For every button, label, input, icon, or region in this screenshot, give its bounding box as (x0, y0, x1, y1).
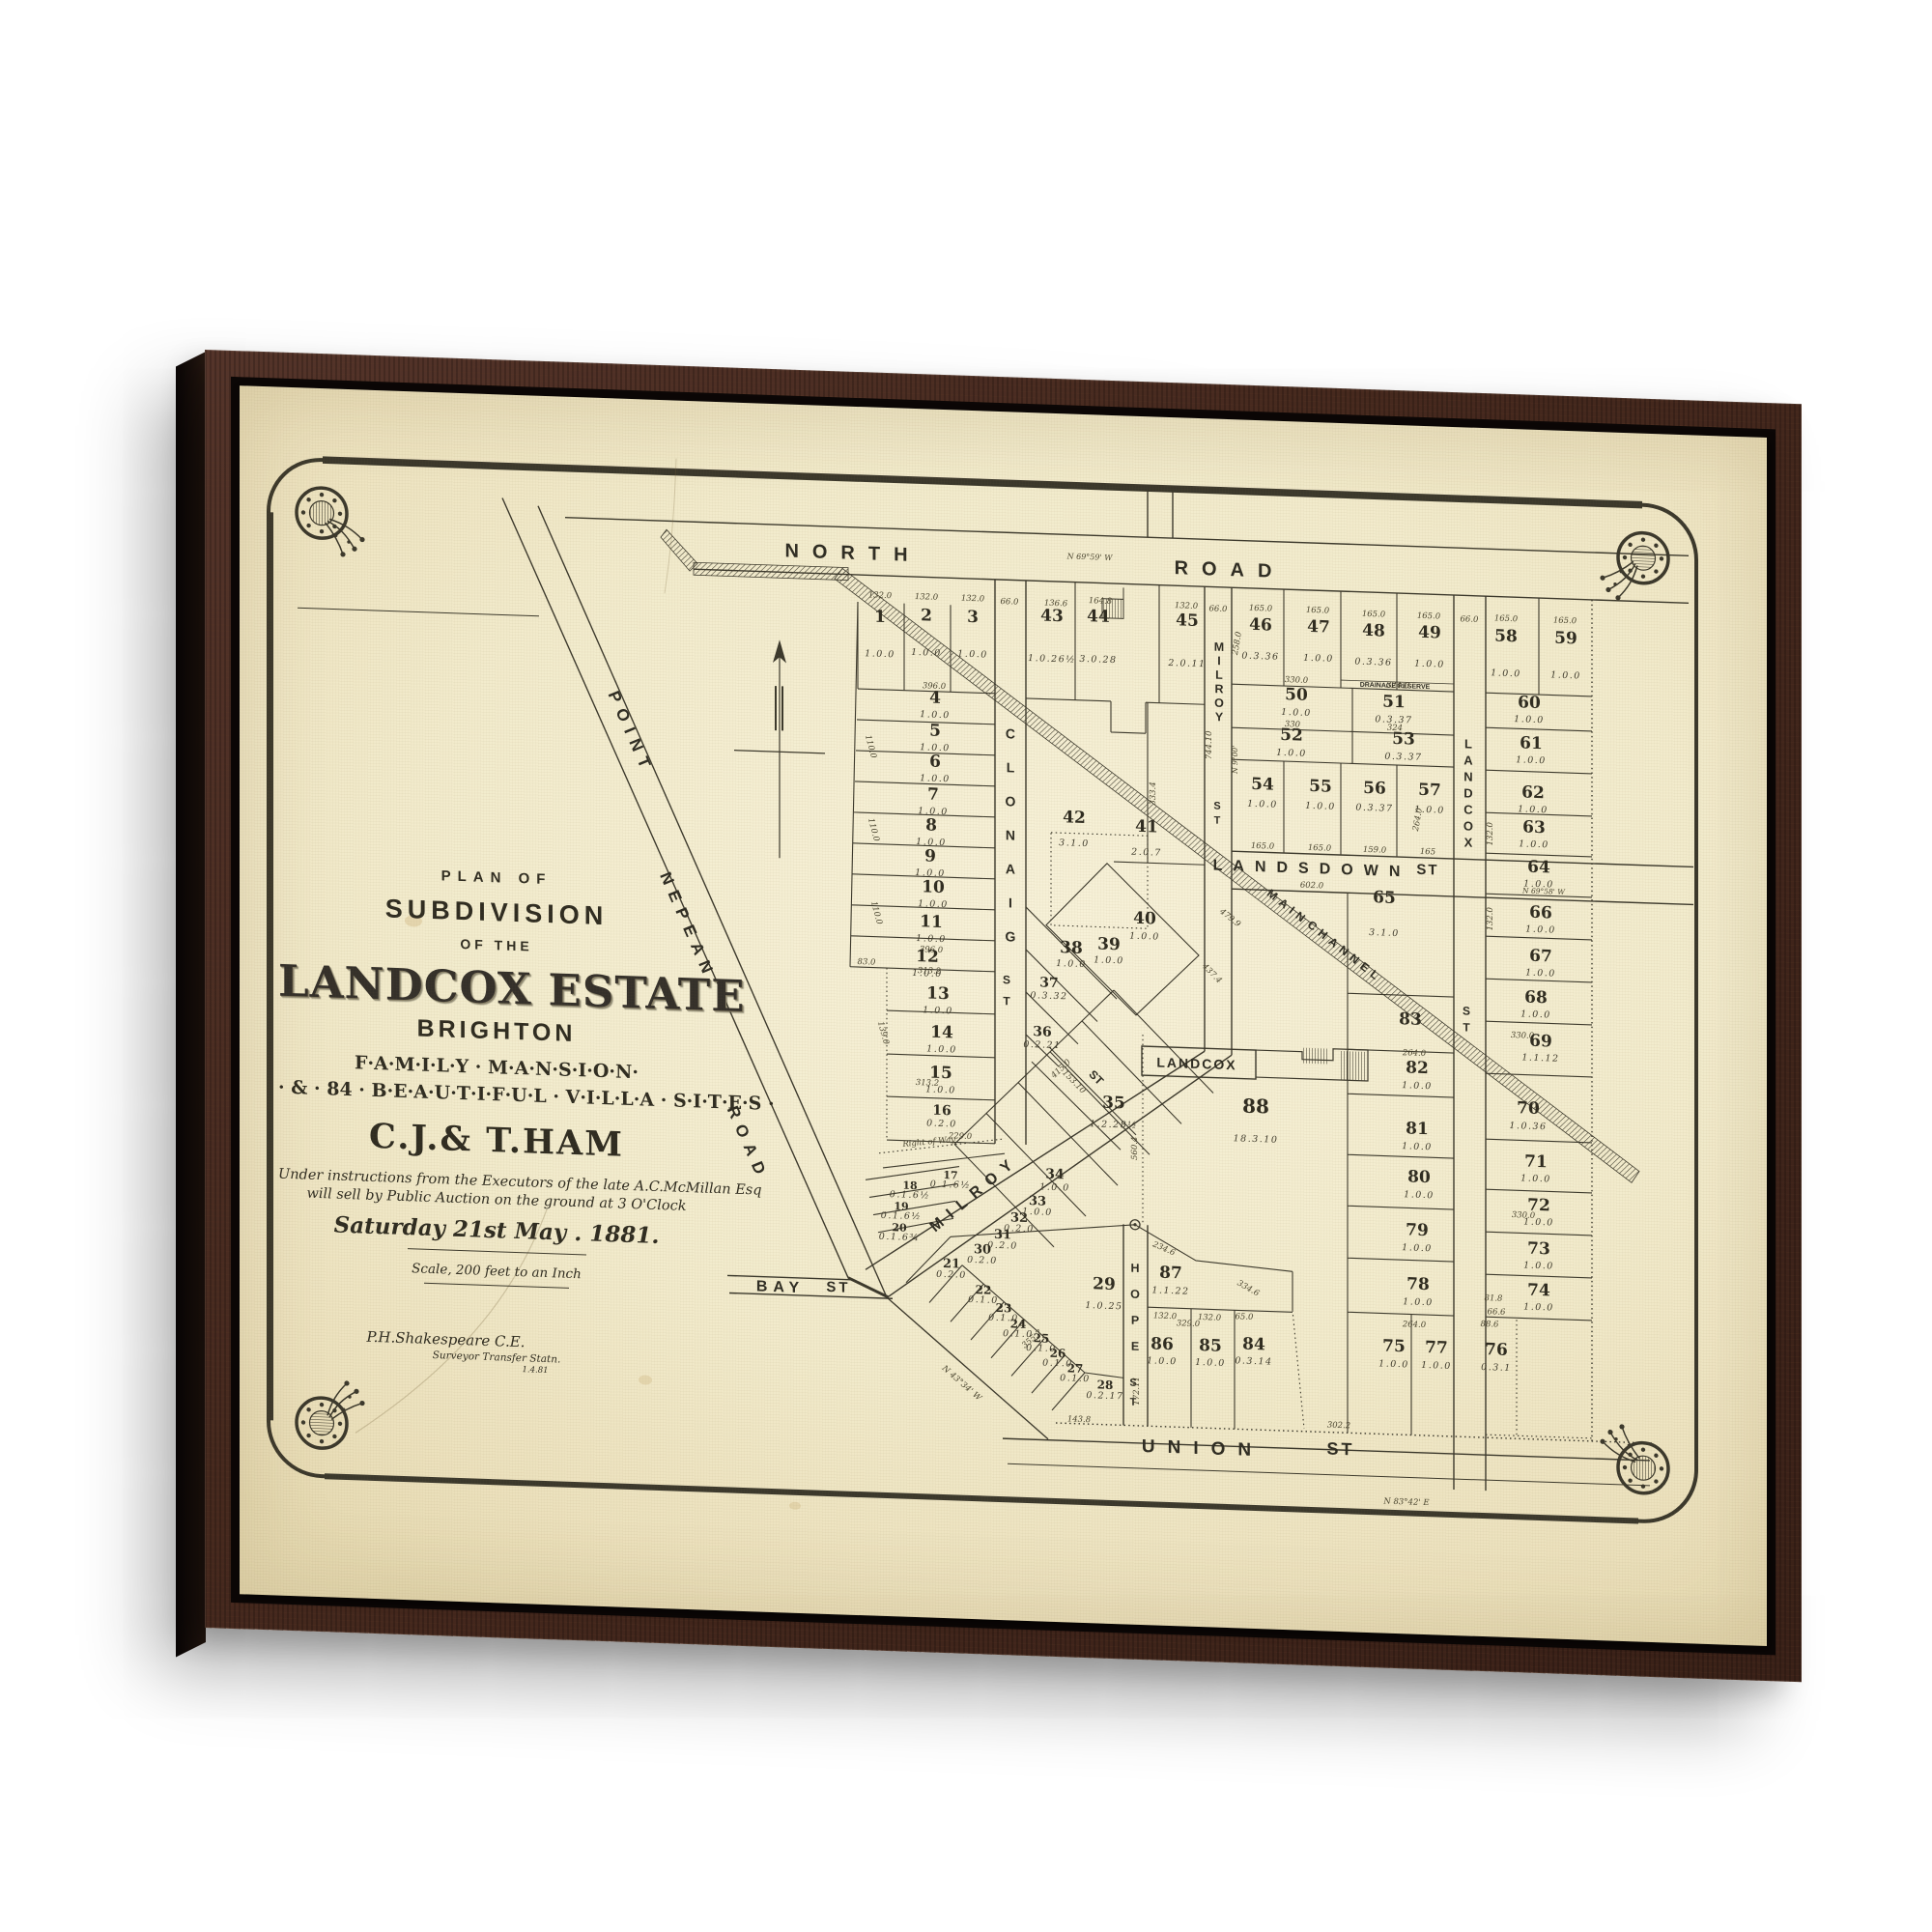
lot-area: 1.0.0 (1523, 878, 1554, 890)
street-label-milroy-street: S (1213, 801, 1220, 812)
lot-area: 1.0.0 (1518, 804, 1548, 815)
street-label-milroy-street: Y (1215, 710, 1224, 724)
dimension-label: 334.6 (1236, 1279, 1262, 1299)
lot-number: 35 (1102, 1094, 1125, 1114)
street-label-point-nepean-road: ROAD (724, 1103, 773, 1183)
lot-number: 60 (1518, 693, 1541, 713)
lot-number: 64 (1527, 858, 1550, 878)
street-label-clonaig-street: I (1009, 895, 1012, 910)
lot-area: 1.1.12 (1521, 1052, 1559, 1064)
corner-ornament-top-left (297, 487, 365, 557)
lot-number: 76 (1485, 1340, 1508, 1360)
lot-number: 52 (1280, 725, 1303, 746)
lot-number: 6 (929, 753, 941, 772)
lot-number: 83 (1399, 1009, 1422, 1030)
street-label-clonaig-street: N (1006, 827, 1015, 842)
dimension-label: 560.4 (1130, 1136, 1140, 1160)
dimension-label: 165.0 (1362, 610, 1386, 620)
frame-side-face (176, 352, 206, 1658)
lot-number: 2 (921, 606, 932, 625)
lot-area: 3.0.28 (1079, 654, 1117, 666)
title-subdivision: SUBDIVISION (278, 891, 715, 935)
lot-area: 1.0.0 (1281, 707, 1312, 719)
lot-number: 55 (1309, 777, 1332, 797)
lot-area: 0.1.0 (1003, 1328, 1034, 1340)
lot-number: 70 (1517, 1098, 1540, 1119)
lot-number: 58 (1494, 626, 1518, 646)
dimension-label: 333.4 (1149, 781, 1158, 806)
lot-number: 5 (929, 722, 941, 741)
dimension-label: 264.0 (1402, 1320, 1427, 1330)
dimension-label: 66.0 (1461, 614, 1480, 625)
landcox-building-label: LANDCOX (1156, 1055, 1236, 1073)
lot-area: 1.0.0 (1276, 748, 1307, 759)
dimension-label: 132.0 (868, 590, 893, 601)
street-label-point-nepean-road: POINT (605, 689, 658, 778)
lot-number: 84 (1242, 1335, 1265, 1355)
lot-number: 49 (1418, 623, 1441, 643)
lot-number: 12 (916, 947, 939, 967)
lot-number: 38 (1060, 938, 1083, 958)
lot-area: 1.0.0 (1303, 653, 1334, 665)
lot-area: 1.0.0 (1056, 958, 1087, 970)
lot-area: 1.0.0 (1421, 1360, 1452, 1372)
lot-area: 18.3.10 (1234, 1133, 1279, 1146)
street-label-clonaig-street: T (1003, 994, 1010, 1008)
lot-number: 63 (1522, 817, 1546, 838)
lot-area: 1.0.0 (1550, 669, 1581, 681)
street-label-st: ST (1086, 1067, 1106, 1088)
title-rule-2 (424, 1283, 569, 1289)
street-label-clonaig-street: L (1007, 759, 1015, 775)
street-label-landcox-street: S (1463, 1004, 1470, 1017)
street-label-landcox-street: A (1463, 753, 1473, 767)
dimension-label: 165.0 (1306, 606, 1330, 616)
lot-area: 0.1.0 (968, 1294, 999, 1306)
street-label-landcox-street: O (1463, 818, 1473, 833)
lot-number: 8 (925, 815, 937, 835)
lot-area: 1.0.0 (1520, 1173, 1551, 1184)
lot-area: 1.0.0 (1516, 754, 1547, 766)
street-label-milroy-street: M (1214, 640, 1224, 654)
frame-float-gap: NORTHROADPOINTNEPEANROADBAYSTUNIONSTMILR… (231, 377, 1776, 1655)
dimension-label: 66.0 (1001, 597, 1020, 608)
lot-area: 1.0.0 (1519, 838, 1549, 850)
lot-number: 87 (1159, 1264, 1182, 1284)
dimension-label: 66.0 (1209, 604, 1229, 614)
street-label-clonaig-street: A (1006, 861, 1015, 876)
lot-number: 50 (1285, 685, 1308, 705)
dimension-label: 172.11 (1132, 1377, 1142, 1406)
lot-area: 1.0.0 (912, 968, 943, 980)
dimension-label: 81.8 (1485, 1293, 1504, 1304)
lot-number: 57 (1418, 781, 1441, 801)
lot-number: 80 (1407, 1167, 1431, 1187)
dimension-label: 165 (1420, 847, 1435, 858)
lot-number: 68 (1524, 988, 1548, 1009)
lot-number: 56 (1363, 779, 1386, 799)
dimension-label: 143.8 (1067, 1414, 1092, 1425)
lot-area: 1.0.0 (1414, 805, 1445, 816)
title-rule (408, 1248, 586, 1255)
lot-area: 1.0.0 (1491, 668, 1521, 679)
lot-number: 51 (1382, 693, 1406, 713)
lot-area: 1.0.0 (920, 773, 951, 784)
lot-number: 74 (1527, 1281, 1550, 1301)
lot-area: 0.3.32 (1030, 990, 1067, 1002)
lot-number: 62 (1521, 782, 1545, 803)
lot-area: 1.0.0 (1414, 659, 1445, 670)
lot-area: 1.0.0 (1195, 1357, 1226, 1369)
lot-number: 75 (1382, 1337, 1406, 1357)
picture-frame: NORTHROADPOINTNEPEANROADBAYSTUNIONSTMILR… (205, 350, 1802, 1682)
title-estate-name: LANDCOX ESTATE (278, 955, 715, 1021)
lot-area: 0.2.0 (926, 1118, 957, 1129)
lot-number: 54 (1251, 775, 1274, 795)
lot-number: 34 (1045, 1167, 1065, 1183)
dimension-label: 479.9 (1217, 906, 1243, 929)
lot-area: 0.1.6½ (881, 1210, 922, 1222)
lot-number: 3 (967, 608, 979, 627)
street-label-bay-street: BAY (756, 1278, 805, 1296)
dimension-label: 302.2 (1327, 1421, 1350, 1432)
lot-number: 10 (922, 877, 945, 897)
lot-number: 88 (1242, 1094, 1269, 1119)
lot-number: 44 (1087, 607, 1110, 627)
lot-area: 1.0.0 (920, 709, 951, 721)
bearing-label: N 69°59' W (1066, 552, 1114, 562)
title-agent: C.J.& T.HAM (278, 1114, 715, 1168)
lot-area: 1.0.0 (1247, 799, 1278, 810)
street-label-hope-street: O (1130, 1288, 1140, 1301)
lot-area: 1.0.0 (1305, 801, 1336, 812)
street-label-landcox-street: C (1463, 802, 1473, 816)
street-label-landsdown-street: ST (1416, 862, 1438, 879)
lot-area: 1.2.28½ (1090, 1119, 1138, 1131)
lot-number: 86 (1151, 1334, 1174, 1354)
lot-area: 1.0.0 (925, 1084, 956, 1095)
lot-number: 9 (924, 846, 936, 866)
dimension-label: 65.0 (1236, 1312, 1255, 1322)
lot-number: 11 (920, 912, 943, 932)
lot-area: 0.3.14 (1235, 1355, 1272, 1367)
lot-area: 0.3.36 (1241, 651, 1279, 663)
corner-ornament-top-right (1600, 531, 1668, 602)
dimension-label: 165.0 (1494, 613, 1519, 624)
lot-area: 1.0.0 (1525, 968, 1556, 980)
lot-area: 1.0.0 (1402, 1141, 1433, 1152)
dimension-label: 88.6 (1481, 1320, 1500, 1330)
dimension-label: 132.0 (1486, 821, 1495, 845)
lot-area: 0.1.6½ (930, 1179, 971, 1191)
lot-area: 0.2.21 (1023, 1039, 1061, 1051)
lot-area: 1.0.26½ (1028, 653, 1076, 666)
street-label-landcox-street: T (1463, 1020, 1470, 1034)
lot-area: 1.0.0 (1523, 1260, 1554, 1271)
lot-number: 16 (932, 1103, 951, 1120)
lot-number: 29 (1093, 1274, 1116, 1294)
dimension-label: 165.0 (1308, 843, 1332, 854)
map-canvas: NORTHROADPOINTNEPEANROADBAYSTUNIONSTMILR… (240, 385, 1767, 1646)
lot-number: 43 (1040, 606, 1064, 626)
street-label-milroy-street: O (1214, 696, 1224, 710)
title-block: PLAN OF SUBDIVISION OF THE LANDCOX ESTAT… (278, 863, 715, 1381)
dimension-label: 110.0 (868, 900, 884, 926)
lot-area: 1.0.0 (1378, 1358, 1409, 1370)
lot-number: 41 (1135, 817, 1158, 838)
lot-area: 0.2.17 (1086, 1390, 1123, 1402)
lot-area: 0.1.0 (1060, 1373, 1091, 1384)
lot-area: 1.0.0 (916, 933, 947, 945)
lot-area: 1.0.0 (918, 898, 949, 910)
lot-area: 2.0.11 (1167, 658, 1206, 669)
dimension-label: 165.0 (1553, 616, 1577, 627)
lot-area: 0.2.0 (1004, 1223, 1035, 1235)
dimension-label: 110.0 (866, 817, 881, 843)
lot-area: 3.1.0 (1369, 927, 1400, 939)
lot-number: 69 (1529, 1032, 1552, 1052)
lot-number: 72 (1527, 1196, 1550, 1216)
dimension-label: 132.0 (1198, 1313, 1222, 1323)
bearing-label: N 9°00' (1231, 746, 1239, 775)
lot-area: 1.0.0 (1514, 714, 1545, 725)
lot-number: 78 (1406, 1274, 1430, 1294)
street-label-bay-street: ST (826, 1279, 850, 1296)
street-label-north-road: NORTH (784, 540, 921, 566)
lot-area: 1.0.0 (1129, 931, 1160, 943)
street-label-milroy-street: R (1214, 682, 1223, 696)
street-label-hope-street: H (1130, 1262, 1139, 1275)
lot-area: 1.0.0 (1147, 1355, 1178, 1367)
lot-area: 1.0.0 (865, 648, 895, 660)
lot-number: 37 (1039, 975, 1058, 991)
lot-area: 1.0.0 (1525, 924, 1556, 936)
lot-area: 1.0.0 (923, 1005, 953, 1016)
street-label-landcox-street: N (1463, 769, 1472, 783)
bearing-label: N 43°34' W (939, 1363, 983, 1404)
lot-number: 7 (927, 784, 939, 804)
lot-number: 15 (929, 1064, 952, 1084)
dimension-label: 132.0 (1486, 906, 1495, 930)
lot-area: 2.0.7 (1130, 847, 1162, 859)
dimension-label: 139.0 (875, 1020, 891, 1046)
lot-area: 1.0.0 (911, 647, 942, 659)
lot-area: 1.0.0 (1523, 1301, 1554, 1313)
title-of-the: OF THE (278, 930, 715, 960)
lot-number: 81 (1406, 1119, 1429, 1139)
lot-number: 77 (1425, 1338, 1448, 1358)
lot-area: 1.0.0 (1402, 1242, 1433, 1254)
lot-number: 85 (1199, 1336, 1222, 1356)
lot-number: 4 (929, 689, 941, 708)
street-label-clonaig-street: C (1006, 725, 1015, 741)
lot-number: 42 (1063, 808, 1086, 828)
lot-number: 1 (874, 608, 886, 627)
lot-number: 65 (1373, 888, 1396, 908)
lot-number: 53 (1392, 729, 1415, 750)
street-label-union-street: ST (1326, 1439, 1354, 1460)
lot-area: 0.1.6¾ (879, 1232, 920, 1243)
lot-area: 0.2.0 (936, 1269, 967, 1281)
street-label-milroy-street: I (1217, 654, 1220, 668)
dimension-label: 165.0 (1417, 611, 1441, 622)
lot-number: 14 (930, 1023, 953, 1043)
lot-area: 0.3.37 (1375, 714, 1412, 725)
dimension-label: 132.0 (915, 592, 939, 603)
lot-area: 1.0.25 (1085, 1300, 1122, 1312)
dimension-label: 164.8 (1089, 596, 1113, 607)
lot-number: 47 (1307, 617, 1330, 638)
bearing-label: N 83°42' E (1382, 1497, 1430, 1509)
dimension-label: 324.0 (1386, 681, 1410, 692)
lot-number: 61 (1520, 733, 1543, 753)
lot-area: 1.0.0 (1404, 1189, 1435, 1201)
framed-canvas-artwork: NORTHROADPOINTNEPEANROADBAYSTUNIONSTMILR… (205, 350, 1802, 1682)
lot-area: 0.2.0 (967, 1255, 998, 1266)
lot-area: 1.0.0 (957, 649, 988, 661)
lot-number: 73 (1527, 1239, 1550, 1260)
lot-area: 1.0.0 (1022, 1207, 1053, 1218)
lot-area: 0.3.36 (1354, 657, 1392, 668)
lot-area: 0.3.37 (1355, 803, 1393, 814)
lot-area: 1.0.0 (1094, 954, 1124, 966)
lot-number: 40 (1133, 909, 1156, 929)
dimension-label: 110.0 (863, 734, 878, 760)
street-label-landcox-street: L (1464, 736, 1472, 751)
lot-area: 3.1.0 (1059, 838, 1090, 849)
lot-area: 1.0.36 (1509, 1121, 1547, 1132)
street-label-hope-street: P (1131, 1314, 1139, 1327)
dimension-label: 234.6 (1151, 1239, 1178, 1259)
dimension-label: 83.0 (858, 957, 877, 968)
street-label-milroy-street: T (1214, 815, 1221, 827)
lot-number: 71 (1524, 1152, 1548, 1173)
dimension-label: 66.6 (1488, 1307, 1507, 1318)
dimension-label: 437.4 (1199, 961, 1223, 985)
lot-area: 0.3.37 (1384, 752, 1422, 763)
lot-area: 1.0.0 (1402, 1080, 1433, 1092)
lot-number: 67 (1529, 947, 1552, 967)
dimension-label: 159.0 (1363, 845, 1387, 856)
dimension-label: 132.0 (961, 594, 985, 605)
title-auction-date: Saturday 21st May . 1881. (278, 1210, 715, 1251)
lot-area: 0.2.0 (987, 1240, 1018, 1252)
lot-number: 13 (926, 983, 950, 1004)
lot-number: 66 (1529, 903, 1552, 923)
street-label-milroy-street: L (1215, 668, 1223, 682)
product-photo: NORTHROADPOINTNEPEANROADBAYSTUNIONSTMILR… (0, 0, 1932, 1932)
dimension-label: 165.0 (1249, 604, 1273, 614)
street-label-clonaig-street: G (1006, 928, 1016, 944)
street-label-hope-street: E (1131, 1340, 1139, 1353)
lot-number: 59 (1554, 629, 1577, 649)
lot-number: 46 (1249, 615, 1272, 636)
corner-ornament-bottom-left (297, 1379, 365, 1450)
dimension-label: 132.0 (1153, 1311, 1178, 1321)
lot-area: 1.0.0 (1403, 1296, 1434, 1308)
lot-area: 1.0.0 (1520, 1009, 1551, 1020)
dimension-label: 744.10 (1205, 730, 1214, 760)
lot-number: 39 (1097, 934, 1121, 954)
lot-area: 0.3.1 (1481, 1362, 1512, 1374)
lot-area: 1.0.0 (1523, 1216, 1554, 1228)
north-arrow-compass (734, 639, 825, 860)
street-label-north-road: ROAD (1175, 557, 1286, 582)
lot-area: 1.0.0 (1039, 1181, 1070, 1193)
street-label-clonaig-street: S (1003, 973, 1010, 986)
street-label-union-street: UNION (1142, 1436, 1264, 1461)
dimension-label: 165.0 (1251, 841, 1275, 852)
lot-number: 36 (1033, 1024, 1051, 1040)
dimension-label: 602.0 (1300, 881, 1324, 892)
lot-area: 1.0.0 (926, 1043, 957, 1055)
street-label-landcox-street: X (1464, 835, 1473, 849)
lot-number: 45 (1176, 611, 1199, 631)
lot-area: 1.1.22 (1151, 1285, 1189, 1296)
lot-number: 79 (1406, 1220, 1429, 1240)
lot-number: 82 (1406, 1058, 1429, 1078)
street-label-clonaig-street: O (1006, 793, 1016, 809)
title-scale-note: Scale, 200 feet to an Inch (278, 1257, 715, 1287)
dimension-label: 229.0 (948, 1131, 973, 1142)
street-label-landcox-street: D (1463, 785, 1472, 800)
lot-number: 48 (1362, 621, 1385, 641)
